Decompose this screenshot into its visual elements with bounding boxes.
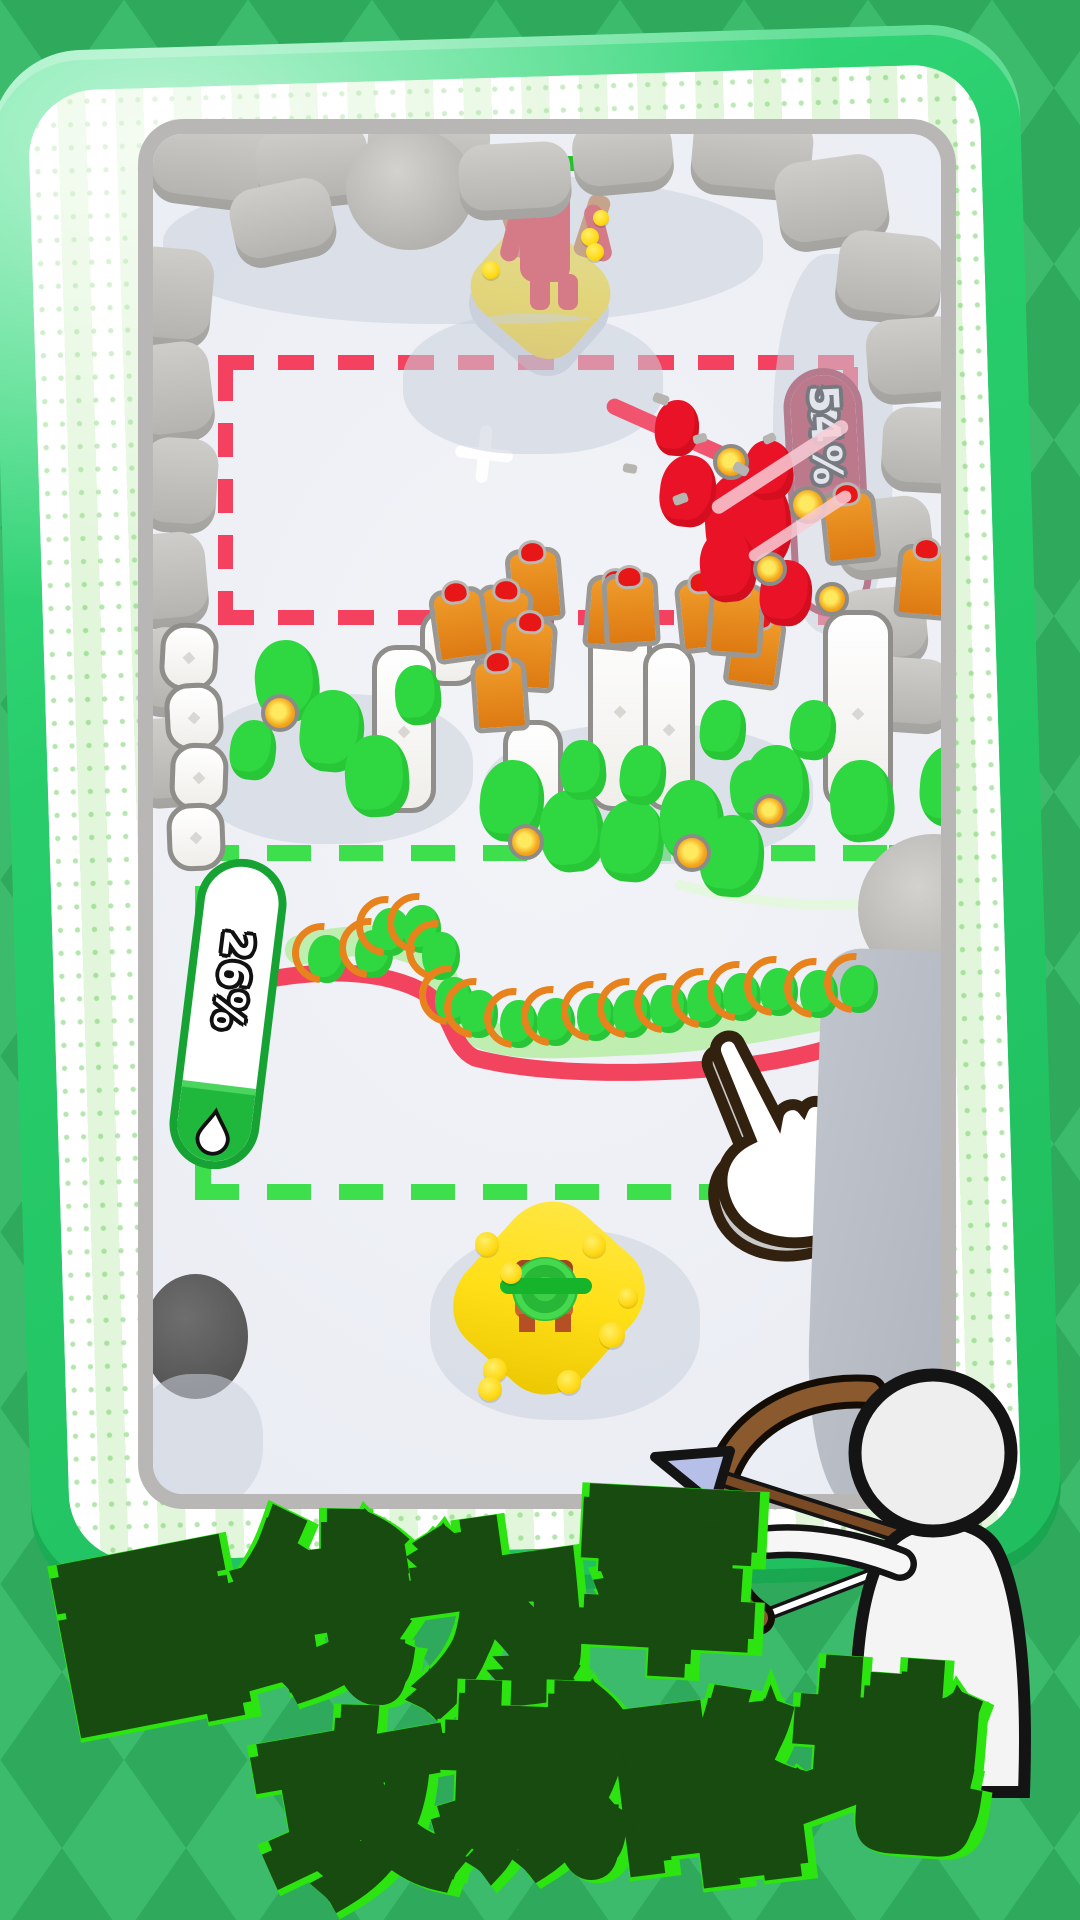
rock (153, 435, 220, 535)
shield-accent (673, 834, 711, 872)
rock (880, 405, 941, 495)
ally-meter-value: 26% (202, 919, 262, 1044)
coin (500, 1262, 522, 1284)
floor-shadow (403, 314, 663, 454)
coin (482, 261, 500, 279)
coin (475, 1232, 499, 1256)
shield-accent (508, 824, 544, 860)
rock (570, 134, 676, 198)
coin (618, 1287, 638, 1307)
caption-character: 攻 (249, 1646, 469, 1920)
rock (833, 228, 941, 328)
archer-head (855, 1375, 1011, 1531)
caption-character: 略 (610, 1633, 818, 1908)
caption-character: 地 (794, 1605, 989, 1872)
promo-screenshot: 54% 26% ⚡ ▶ (0, 0, 1080, 1920)
caption-face-layer: 攻城略地 (262, 1621, 986, 1913)
shield-barricade (601, 572, 661, 649)
shield-barricade (469, 656, 530, 734)
coin (582, 1233, 606, 1257)
pillar-obstacle (158, 622, 219, 693)
shield-accent (261, 694, 299, 732)
coin (593, 210, 609, 226)
shield-accent (815, 582, 849, 616)
shield-accent (753, 794, 787, 828)
coin (599, 1322, 625, 1348)
rock (457, 140, 573, 222)
pillar-obstacle (166, 802, 226, 872)
coin (586, 243, 604, 261)
gameplay-screenshot: 54% 26% ⚡ ▶ (153, 134, 941, 1494)
line-archer-unit (840, 965, 878, 1013)
rock (153, 244, 216, 351)
coin (478, 1377, 502, 1401)
shield-barricade (427, 584, 493, 665)
coin (557, 1370, 581, 1394)
shield-barricade (893, 543, 941, 622)
caption-character: 画 (42, 1477, 261, 1756)
rock (864, 315, 941, 407)
droplet-icon (192, 1105, 235, 1153)
pillar-obstacle (169, 742, 229, 812)
caption-character: 城 (442, 1631, 629, 1892)
